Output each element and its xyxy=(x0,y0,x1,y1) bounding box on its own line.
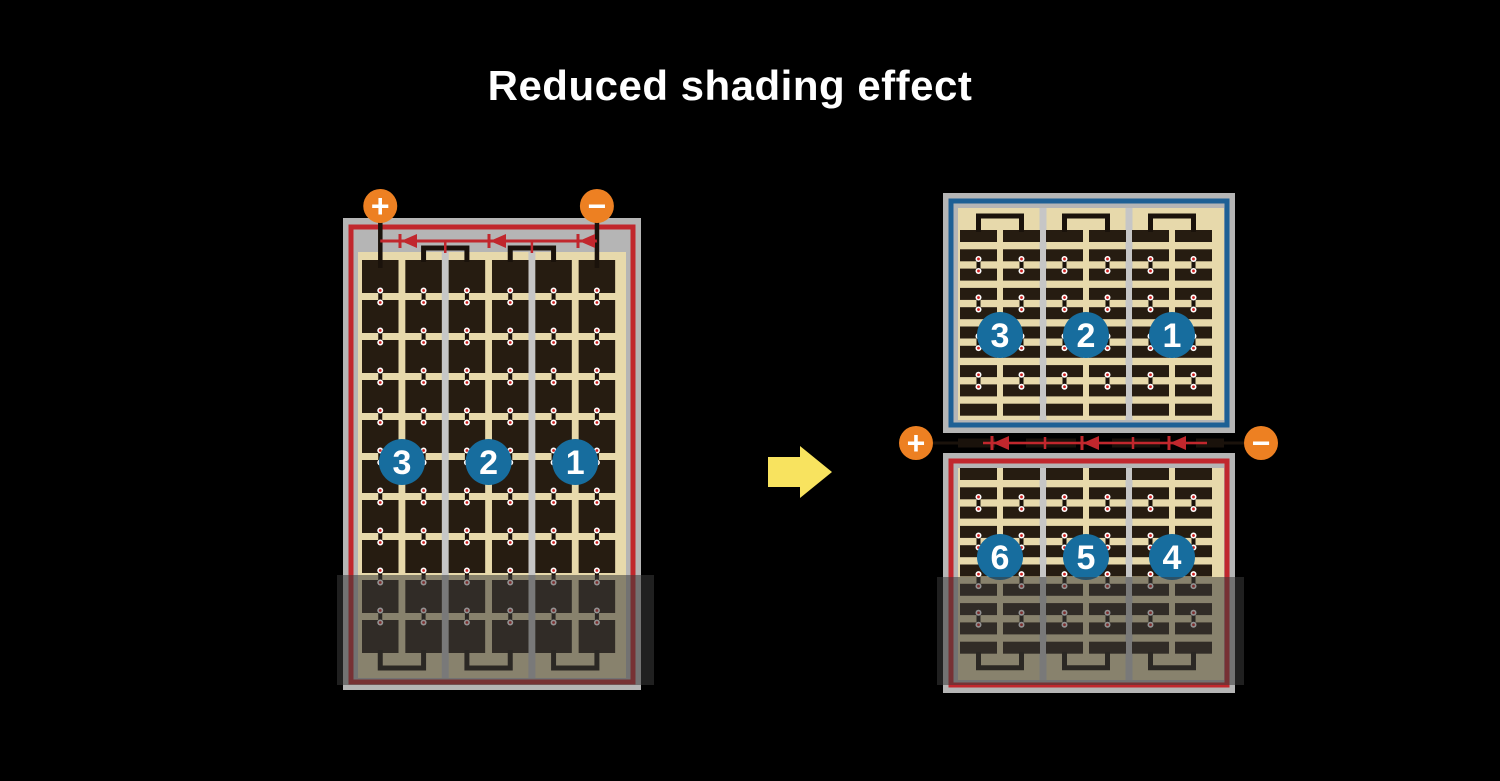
half-cut-cell xyxy=(1003,468,1040,480)
svg-text:3: 3 xyxy=(991,317,1010,355)
half-cut-cell xyxy=(1132,468,1169,480)
svg-text:5: 5 xyxy=(1077,539,1096,577)
group-divider xyxy=(1126,208,1133,420)
string-badge-1: 1 xyxy=(552,439,598,485)
string-badge-3: 3 xyxy=(379,439,425,485)
half-cut-cell xyxy=(1175,404,1212,416)
transform-arrow-icon xyxy=(768,446,832,498)
svg-text:−: − xyxy=(1252,425,1271,461)
bypass-diode-icon xyxy=(992,436,1009,450)
group-divider xyxy=(1040,208,1047,420)
half-cut-cell xyxy=(1089,404,1126,416)
svg-text:+: + xyxy=(371,188,390,224)
diagram-canvas: +−321321654+− xyxy=(0,0,1500,781)
svg-text:6: 6 xyxy=(991,539,1010,577)
half-cut-cell xyxy=(960,404,997,416)
minus-terminal: − xyxy=(1244,425,1278,461)
string-badge-6: 6 xyxy=(977,534,1023,580)
svg-text:3: 3 xyxy=(392,444,411,482)
half-cut-cell xyxy=(1046,468,1083,480)
string-badge-2: 2 xyxy=(466,439,512,485)
bypass-diode-icon xyxy=(1082,436,1099,450)
half-cut-cell xyxy=(960,468,997,480)
right-panel-top-half: 321 xyxy=(943,193,1235,433)
half-cut-cell xyxy=(1003,404,1040,416)
svg-text:−: − xyxy=(588,188,607,224)
half-cut-cell xyxy=(1175,468,1212,480)
string-badge-2: 2 xyxy=(1063,312,1109,358)
shading-overlay xyxy=(937,577,1244,685)
string-badge-5: 5 xyxy=(1063,534,1109,580)
svg-text:4: 4 xyxy=(1163,539,1182,577)
svg-text:1: 1 xyxy=(566,444,585,482)
diagram-stage: Reduced shading effect +−321321654+− xyxy=(0,0,1500,781)
string-badge-3: 3 xyxy=(977,312,1023,358)
bypass-diode-icon xyxy=(1169,436,1186,450)
half-cut-cell xyxy=(1132,404,1169,416)
plus-terminal: + xyxy=(899,425,933,461)
svg-text:2: 2 xyxy=(479,444,498,482)
half-cut-cell xyxy=(1046,404,1083,416)
svg-text:+: + xyxy=(907,425,926,461)
shading-overlay xyxy=(337,575,654,685)
svg-text:2: 2 xyxy=(1077,317,1096,355)
half-cut-cell xyxy=(1089,468,1126,480)
string-badge-4: 4 xyxy=(1149,534,1195,580)
string-badge-1: 1 xyxy=(1149,312,1195,358)
left-panel: +−321 xyxy=(337,188,654,690)
svg-text:1: 1 xyxy=(1163,317,1182,355)
